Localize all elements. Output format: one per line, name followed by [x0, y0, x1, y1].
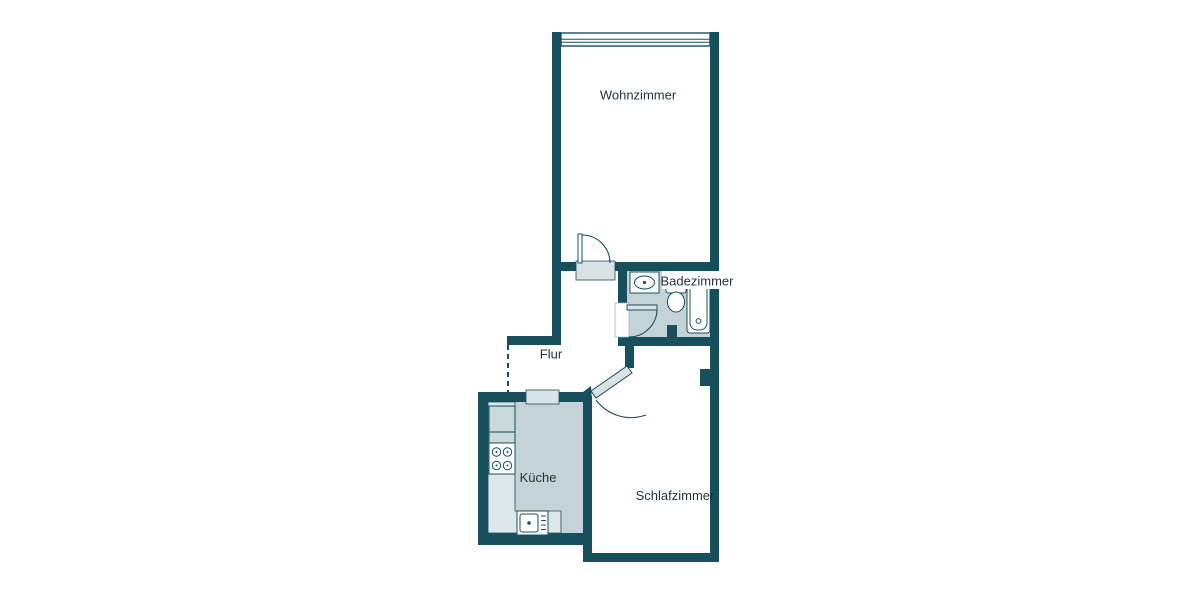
door-schlafzimmer [591, 366, 646, 418]
wall-segment [507, 336, 552, 345]
floor-plan-page: Wohnzimmer Badezimmer Flur Küche Schlafz… [0, 0, 1200, 600]
door-leaf [627, 305, 657, 310]
wall-segment [625, 346, 634, 368]
floor-plan: Wohnzimmer Badezimmer Flur Küche Schlafz… [0, 0, 1200, 600]
kitchen-cabinet [489, 406, 515, 432]
threshold-wohnzimmer-door [576, 261, 615, 280]
wall-segment [552, 32, 561, 345]
threshold-kueche-entry [526, 390, 559, 404]
kitchen-cabinet [489, 432, 515, 443]
room-label-kueche: Küche [520, 470, 557, 485]
wall-segment [561, 262, 577, 271]
stove-icon [489, 443, 515, 474]
room-label-flur: Flur [540, 347, 563, 362]
door-wohnzimmer [578, 234, 610, 263]
wall-segment [614, 262, 710, 271]
wall-stub [667, 325, 677, 337]
door-arc [582, 235, 610, 263]
washbasin-icon [630, 272, 659, 293]
wall-segment [618, 337, 719, 346]
room-label-badezimmer: Badezimmer [661, 274, 735, 289]
kitchen-sink-icon [517, 511, 548, 535]
wall-segment [583, 553, 719, 562]
door-arc [596, 400, 646, 418]
wall-segment [583, 396, 592, 562]
room-label-schlafzimmer: Schlafzimmer [636, 488, 715, 503]
room-label-wohnzimmer: Wohnzimmer [600, 88, 677, 103]
wall-segment [710, 32, 719, 562]
door-leaf [591, 366, 632, 398]
door-leaf [578, 234, 582, 263]
wall-pillar [700, 369, 710, 386]
wall-segment [618, 271, 627, 304]
wall-corner-stub [583, 386, 592, 402]
window-icon [561, 33, 710, 46]
wall-segment [478, 392, 488, 545]
